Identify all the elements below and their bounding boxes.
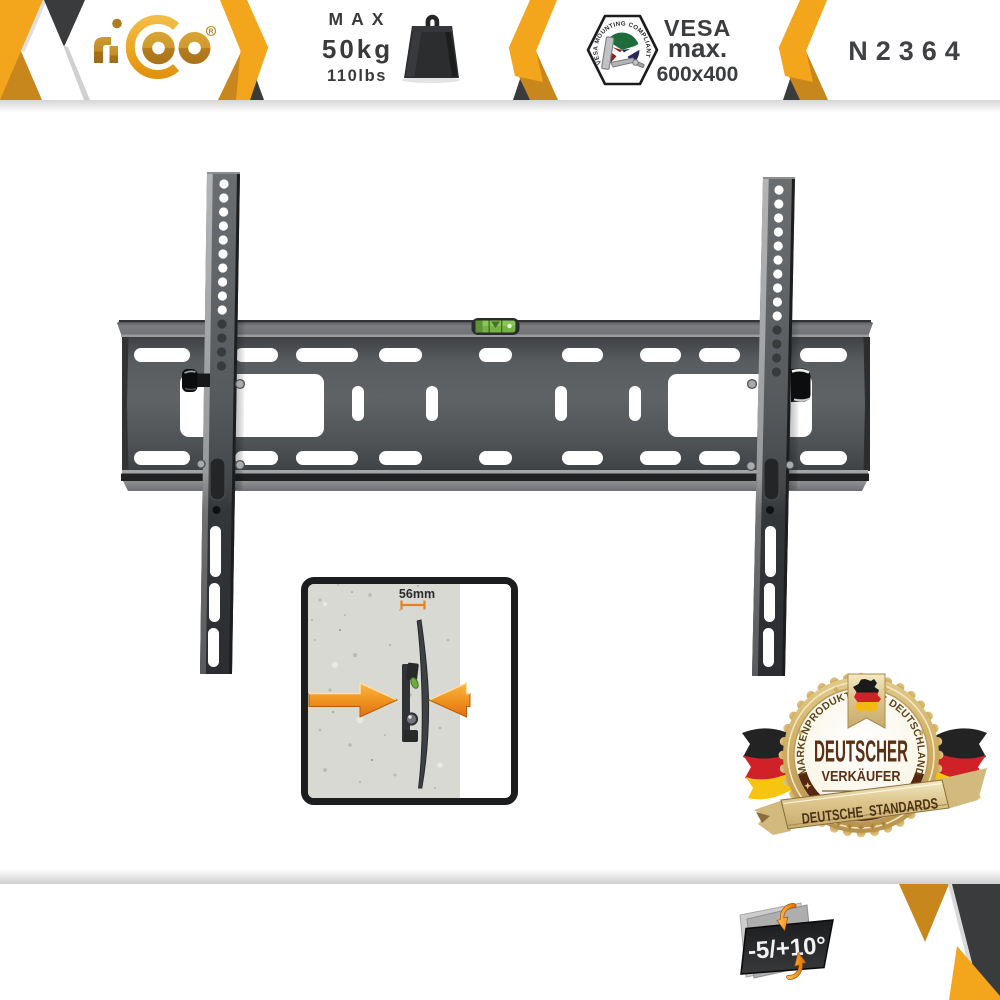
svg-text:56mm: 56mm xyxy=(399,587,435,601)
svg-text:R: R xyxy=(208,29,213,36)
svg-text:VERKÄUFER: VERKÄUFER xyxy=(822,768,901,785)
svg-text:DEUTSCHER: DEUTSCHER xyxy=(814,734,908,769)
